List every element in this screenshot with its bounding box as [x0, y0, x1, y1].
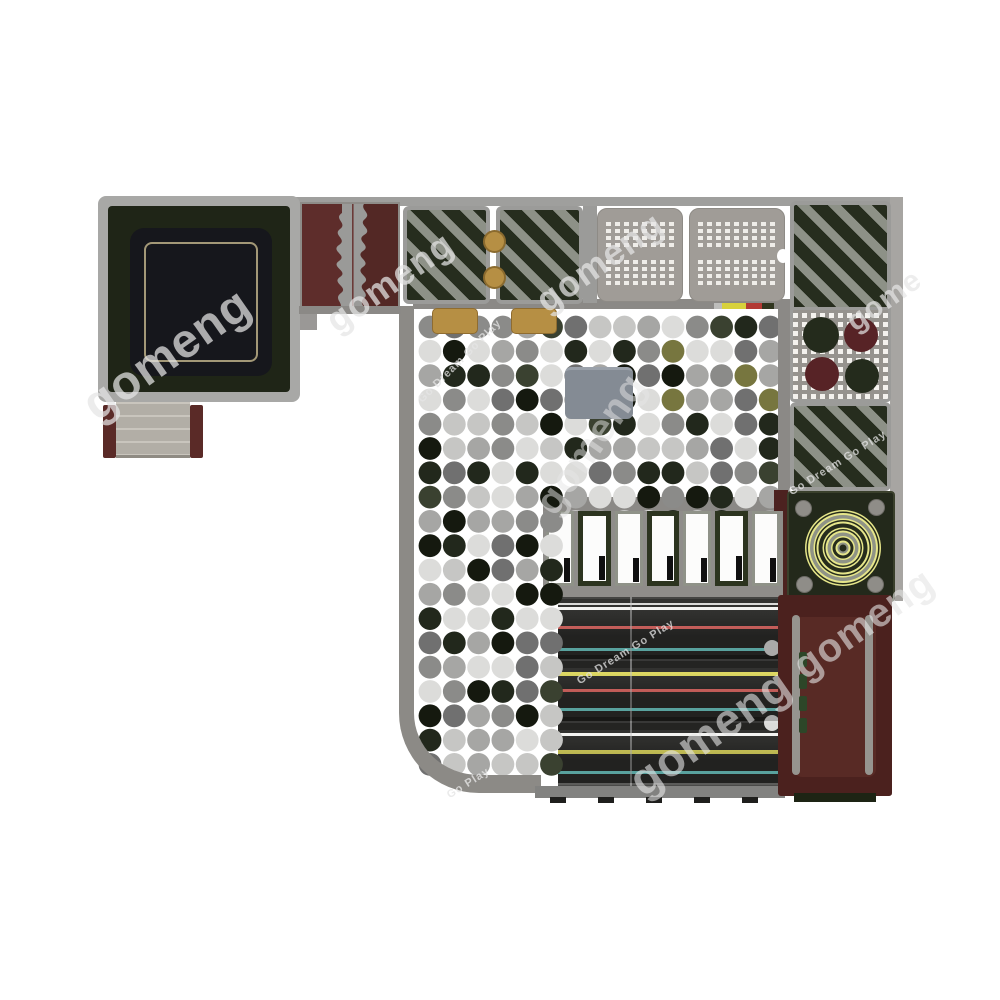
ball [540, 534, 563, 557]
ball [540, 632, 563, 655]
ball [540, 753, 563, 776]
ball [540, 680, 563, 703]
ball-pit-foreground [0, 0, 1000, 1000]
ball [540, 583, 563, 606]
ball [540, 656, 563, 679]
playground-top-view: gomenggomenggomenggomegomengGo Dream Go … [0, 0, 1000, 1000]
ball [540, 607, 563, 630]
ball [540, 510, 563, 533]
ball [540, 704, 563, 727]
ball [540, 559, 563, 582]
ball [540, 729, 563, 752]
